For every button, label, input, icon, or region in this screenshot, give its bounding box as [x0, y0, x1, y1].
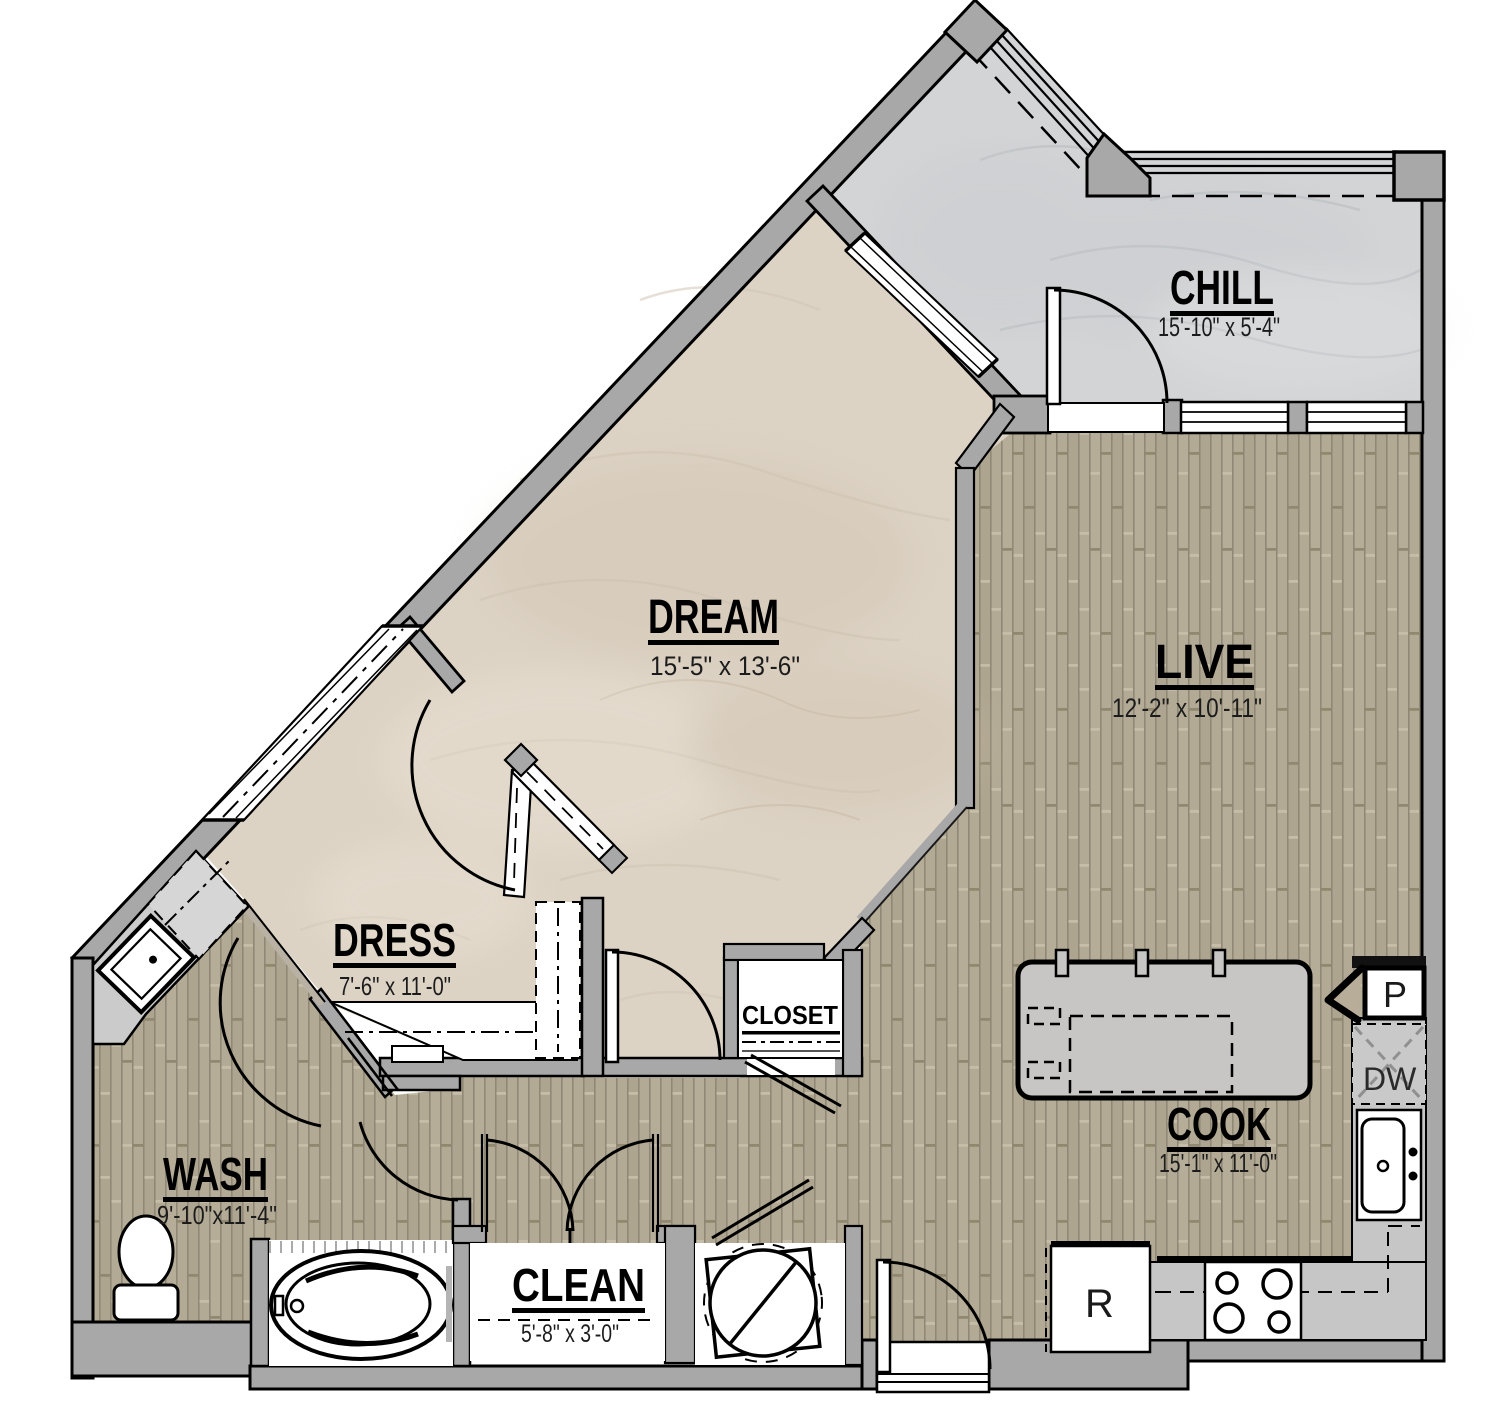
svg-text:15'-10" x 5'-4": 15'-10" x 5'-4": [1158, 312, 1280, 342]
svg-text:DREAM: DREAM: [648, 591, 779, 644]
svg-text:DW: DW: [1363, 1061, 1417, 1097]
svg-text:R: R: [1085, 1282, 1114, 1326]
svg-text:COOK: COOK: [1167, 1098, 1271, 1150]
svg-text:9'-10"x11'-4": 9'-10"x11'-4": [157, 1200, 277, 1230]
svg-text:CLEAN: CLEAN: [512, 1259, 645, 1311]
svg-text:5'-8" x 3'-0": 5'-8" x 3'-0": [521, 1320, 619, 1348]
svg-text:WASH: WASH: [163, 1148, 268, 1200]
svg-text:DRESS: DRESS: [333, 914, 456, 966]
svg-text:LIVE: LIVE: [1155, 636, 1254, 689]
svg-text:15'-5" x 13'-6": 15'-5" x 13'-6": [650, 651, 800, 681]
svg-text:15'-1" x 11'-0": 15'-1" x 11'-0": [1159, 1148, 1277, 1178]
svg-text:7'-6" x 11'-0": 7'-6" x 11'-0": [339, 971, 451, 1001]
svg-text:P: P: [1383, 974, 1407, 1015]
svg-text:12'-2" x 10'-11": 12'-2" x 10'-11": [1112, 693, 1262, 723]
svg-text:CHILL: CHILL: [1170, 262, 1274, 315]
svg-text:CLOSET: CLOSET: [742, 1000, 838, 1030]
